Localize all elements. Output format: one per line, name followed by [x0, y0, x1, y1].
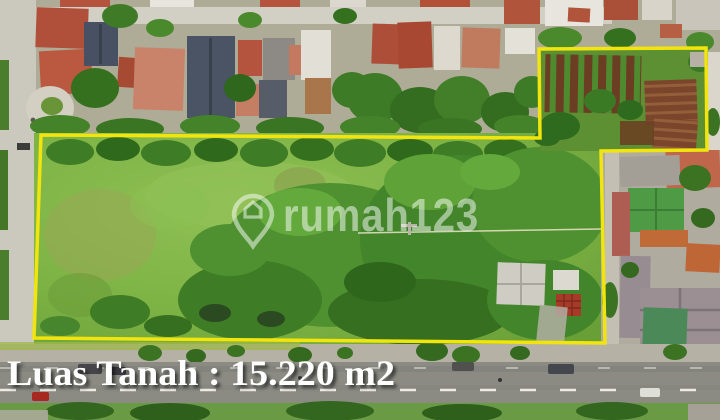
house-roof — [604, 0, 638, 20]
car — [548, 364, 574, 374]
house-roof — [260, 0, 300, 7]
tree — [452, 346, 480, 364]
house-roof — [301, 30, 331, 80]
tree — [434, 76, 490, 124]
house-roof — [238, 40, 262, 76]
aerial-land-photo: rumah123 Luas Tanah : 15.220 m2 — [0, 0, 720, 420]
house-roof — [60, 0, 110, 7]
tree — [71, 68, 119, 108]
house-roof — [305, 78, 331, 114]
farmland — [534, 49, 712, 151]
tree — [584, 89, 616, 113]
tree-canopy — [460, 154, 520, 190]
land-area-caption: Luas Tanah : 15.220 m2 — [7, 353, 395, 393]
tree — [194, 138, 238, 162]
red-car — [32, 392, 49, 401]
tree-canopy — [190, 224, 270, 276]
house-roof — [685, 243, 720, 273]
tree — [510, 346, 530, 360]
tree — [604, 28, 636, 48]
tree — [238, 12, 262, 28]
tree — [46, 402, 114, 420]
tree — [146, 19, 174, 37]
watermark-text: rumah123 — [283, 189, 479, 241]
tree — [334, 139, 386, 167]
tree — [46, 139, 94, 165]
house-roof — [397, 21, 433, 68]
small-building — [553, 270, 579, 290]
tree — [538, 27, 582, 49]
car — [452, 362, 474, 371]
house-roof — [504, 0, 540, 24]
tree — [679, 165, 711, 191]
tree — [240, 139, 288, 167]
white-car — [640, 388, 660, 397]
house-roof — [676, 0, 720, 30]
motorbike — [498, 378, 502, 382]
crop-bed — [620, 121, 654, 145]
house-roof — [660, 24, 682, 38]
tree — [0, 150, 8, 230]
house-roof — [612, 192, 630, 256]
tree-canopy — [344, 262, 416, 302]
house-roof — [133, 47, 185, 111]
house-roof — [505, 28, 535, 54]
house-roof — [35, 7, 88, 49]
house-roof — [434, 26, 460, 70]
pond — [257, 311, 285, 327]
roof-ridge — [99, 24, 102, 64]
tree — [290, 137, 334, 161]
tree — [102, 4, 138, 28]
tree — [663, 344, 687, 360]
pond — [199, 304, 231, 322]
house-roof — [619, 155, 680, 187]
house-roof — [642, 0, 672, 20]
tree — [416, 341, 448, 361]
house-roof — [259, 80, 287, 118]
tree — [691, 208, 715, 228]
house-roof — [330, 0, 366, 7]
parked-car — [17, 143, 30, 150]
house-roof — [420, 0, 470, 7]
bush — [90, 295, 150, 329]
bush — [40, 316, 80, 336]
tree — [0, 250, 9, 320]
house-roof — [150, 0, 194, 7]
tree — [617, 100, 643, 120]
house-roof — [640, 230, 688, 247]
driveway — [536, 305, 568, 344]
tree — [0, 60, 9, 130]
crop-bed — [652, 118, 698, 151]
crop-bed — [644, 79, 698, 125]
house-roof — [568, 7, 591, 22]
bush — [144, 315, 192, 337]
roof-ridge — [209, 38, 212, 116]
tree — [224, 74, 256, 102]
tree — [621, 262, 639, 278]
house-roof — [461, 27, 500, 68]
green-metal-roof — [642, 307, 687, 347]
curved-structure-court — [41, 97, 63, 115]
tree — [141, 140, 191, 166]
tree — [333, 8, 357, 24]
tree — [96, 137, 140, 161]
tree — [576, 402, 648, 420]
